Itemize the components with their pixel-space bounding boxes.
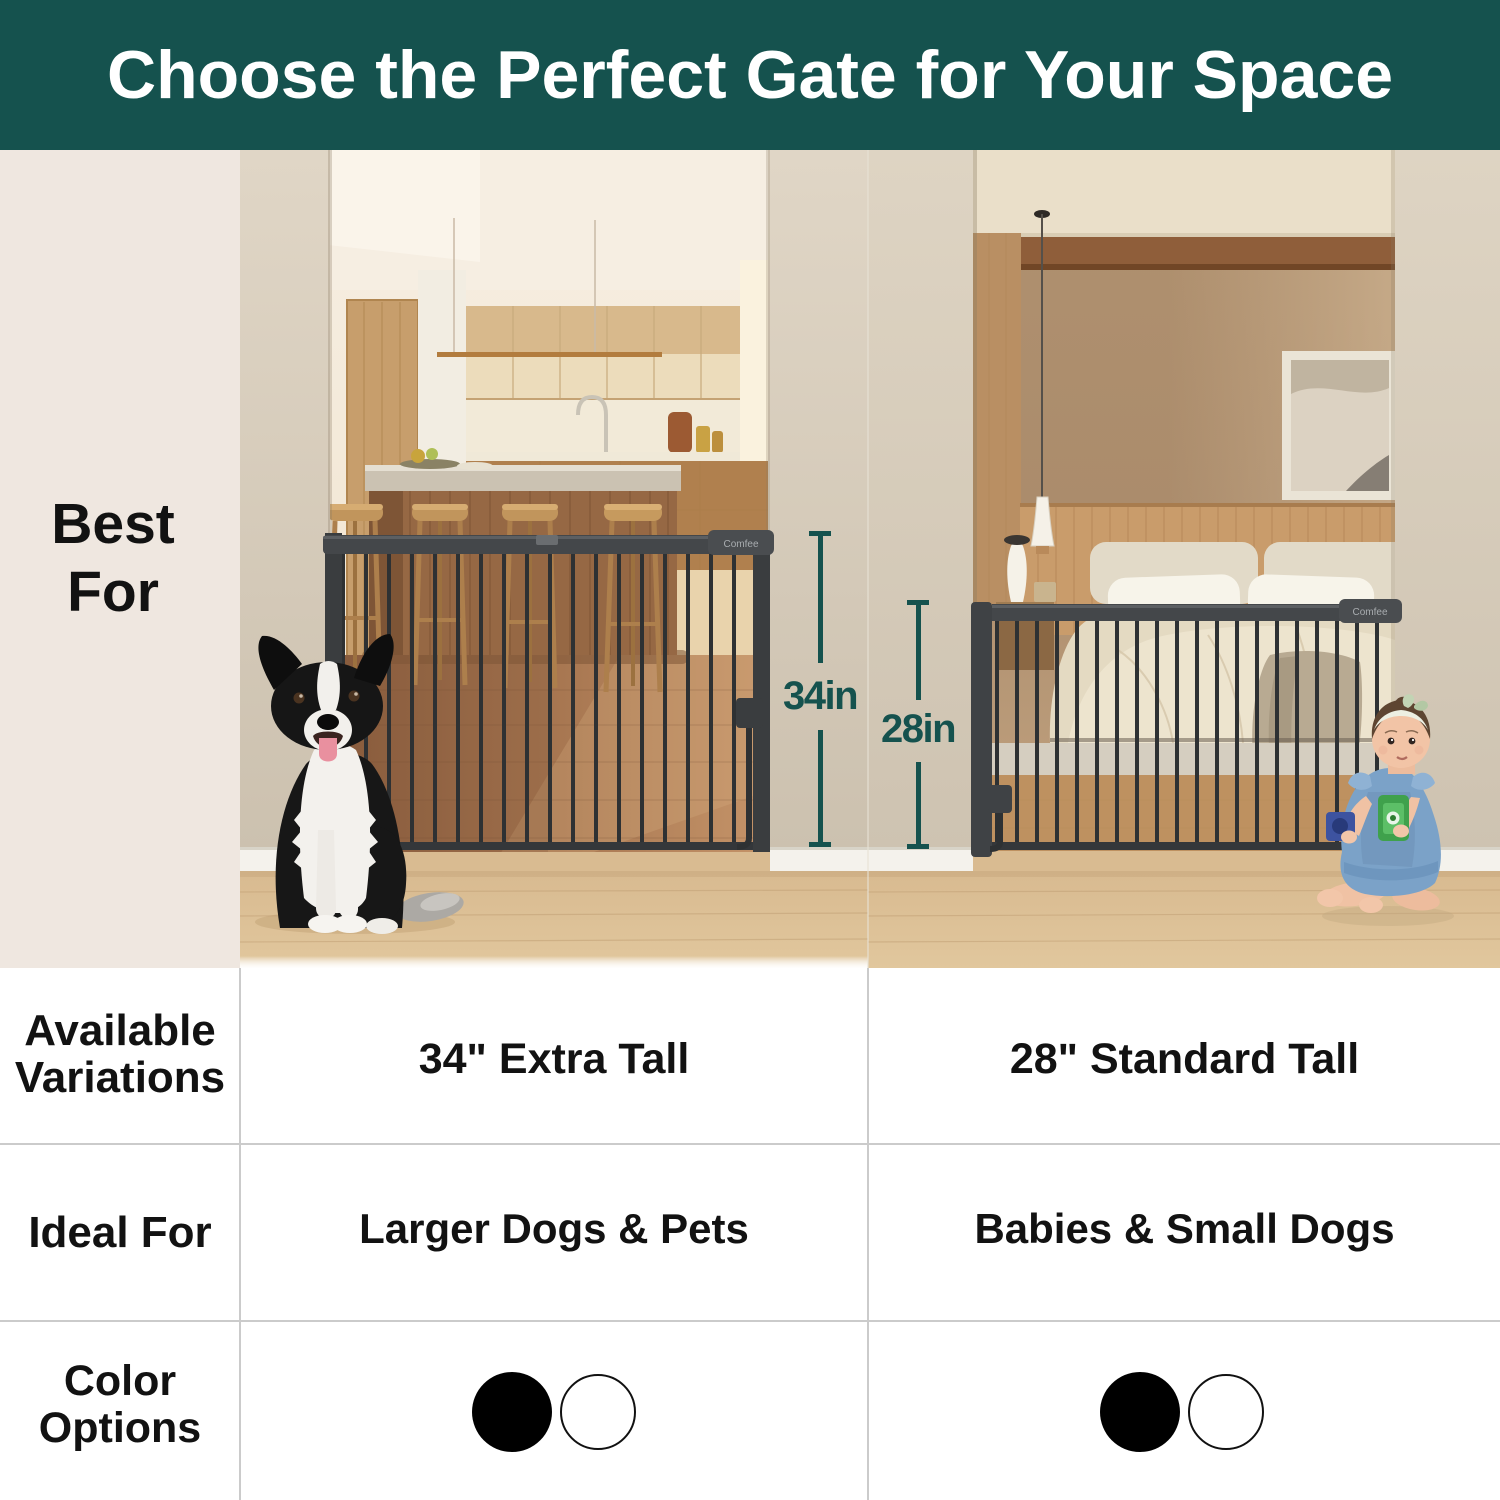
svg-text:Comfee: Comfee: [723, 539, 758, 550]
svg-text:28in: 28in: [881, 707, 955, 751]
svg-text:Comfee: Comfee: [1352, 607, 1387, 618]
svg-text:34in: 34in: [783, 674, 857, 718]
